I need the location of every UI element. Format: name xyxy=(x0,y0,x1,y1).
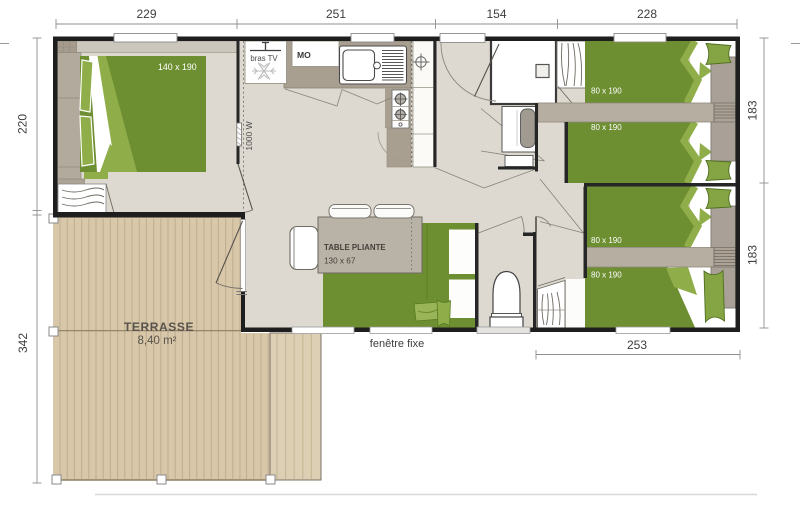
svg-text:80 x 190: 80 x 190 xyxy=(591,271,622,280)
svg-text:TERRASSE: TERRASSE xyxy=(124,320,194,334)
svg-text:228: 228 xyxy=(637,7,657,21)
svg-text:183: 183 xyxy=(746,245,760,265)
svg-text:80 x 190: 80 x 190 xyxy=(591,87,622,96)
svg-text:130 x 67: 130 x 67 xyxy=(324,257,356,266)
svg-text:1000 W: 1000 W xyxy=(244,121,254,150)
svg-text:253: 253 xyxy=(627,338,647,352)
svg-text:fenêtre fixe: fenêtre fixe xyxy=(370,338,424,350)
svg-text:80 x 190: 80 x 190 xyxy=(591,123,622,132)
svg-text:80 x 190: 80 x 190 xyxy=(591,236,622,245)
svg-text:251: 251 xyxy=(326,7,346,21)
svg-text:154: 154 xyxy=(486,7,506,21)
svg-text:140 x 190: 140 x 190 xyxy=(158,62,197,72)
svg-text:183: 183 xyxy=(746,100,760,120)
svg-text:220: 220 xyxy=(16,114,30,134)
svg-text:8,40 m²: 8,40 m² xyxy=(138,335,177,347)
svg-text:bras TV: bras TV xyxy=(250,54,278,63)
svg-text:TABLE PLIANTE: TABLE PLIANTE xyxy=(324,243,386,252)
svg-text:229: 229 xyxy=(136,7,156,21)
svg-text:342: 342 xyxy=(16,333,30,353)
svg-text:MO: MO xyxy=(297,50,311,60)
